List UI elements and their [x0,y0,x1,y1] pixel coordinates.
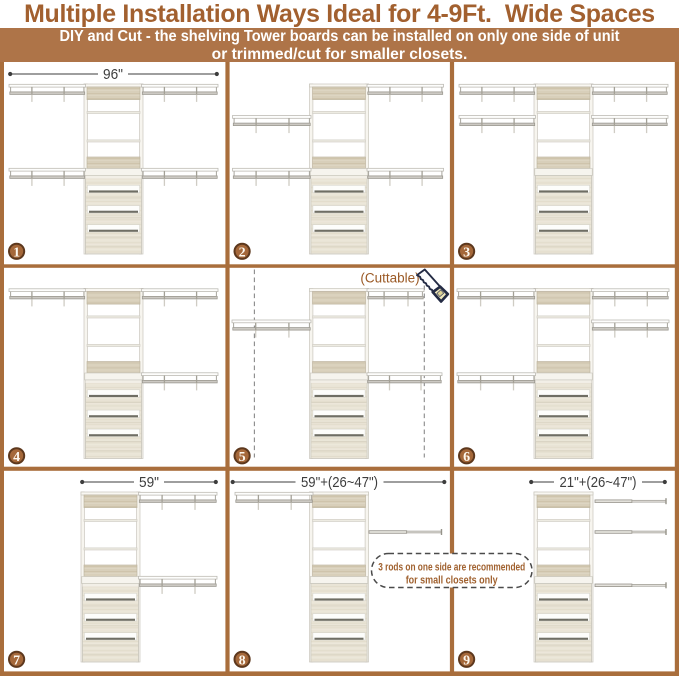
svg-text:3 rods on one side are recomme: 3 rods on one side are recommended [378,562,525,574]
svg-text:6: 6 [463,450,470,465]
svg-text:59"+(26~47"): 59"+(26~47") [301,474,378,491]
svg-text:3: 3 [463,245,470,260]
svg-text:for small closets only: for small closets only [406,575,499,587]
svg-text:96": 96" [103,66,123,83]
svg-text:21"+(26~47"): 21"+(26~47") [560,474,637,491]
svg-text:59": 59" [139,474,159,491]
svg-text:2: 2 [239,245,246,260]
svg-text:7: 7 [13,653,20,668]
svg-text:4: 4 [13,450,20,465]
svg-text:1: 1 [13,245,20,260]
svg-text:8: 8 [239,653,246,668]
svg-text:9: 9 [463,653,470,668]
svg-text:(Cuttable): (Cuttable) [360,271,419,286]
svg-text:5: 5 [239,450,246,465]
